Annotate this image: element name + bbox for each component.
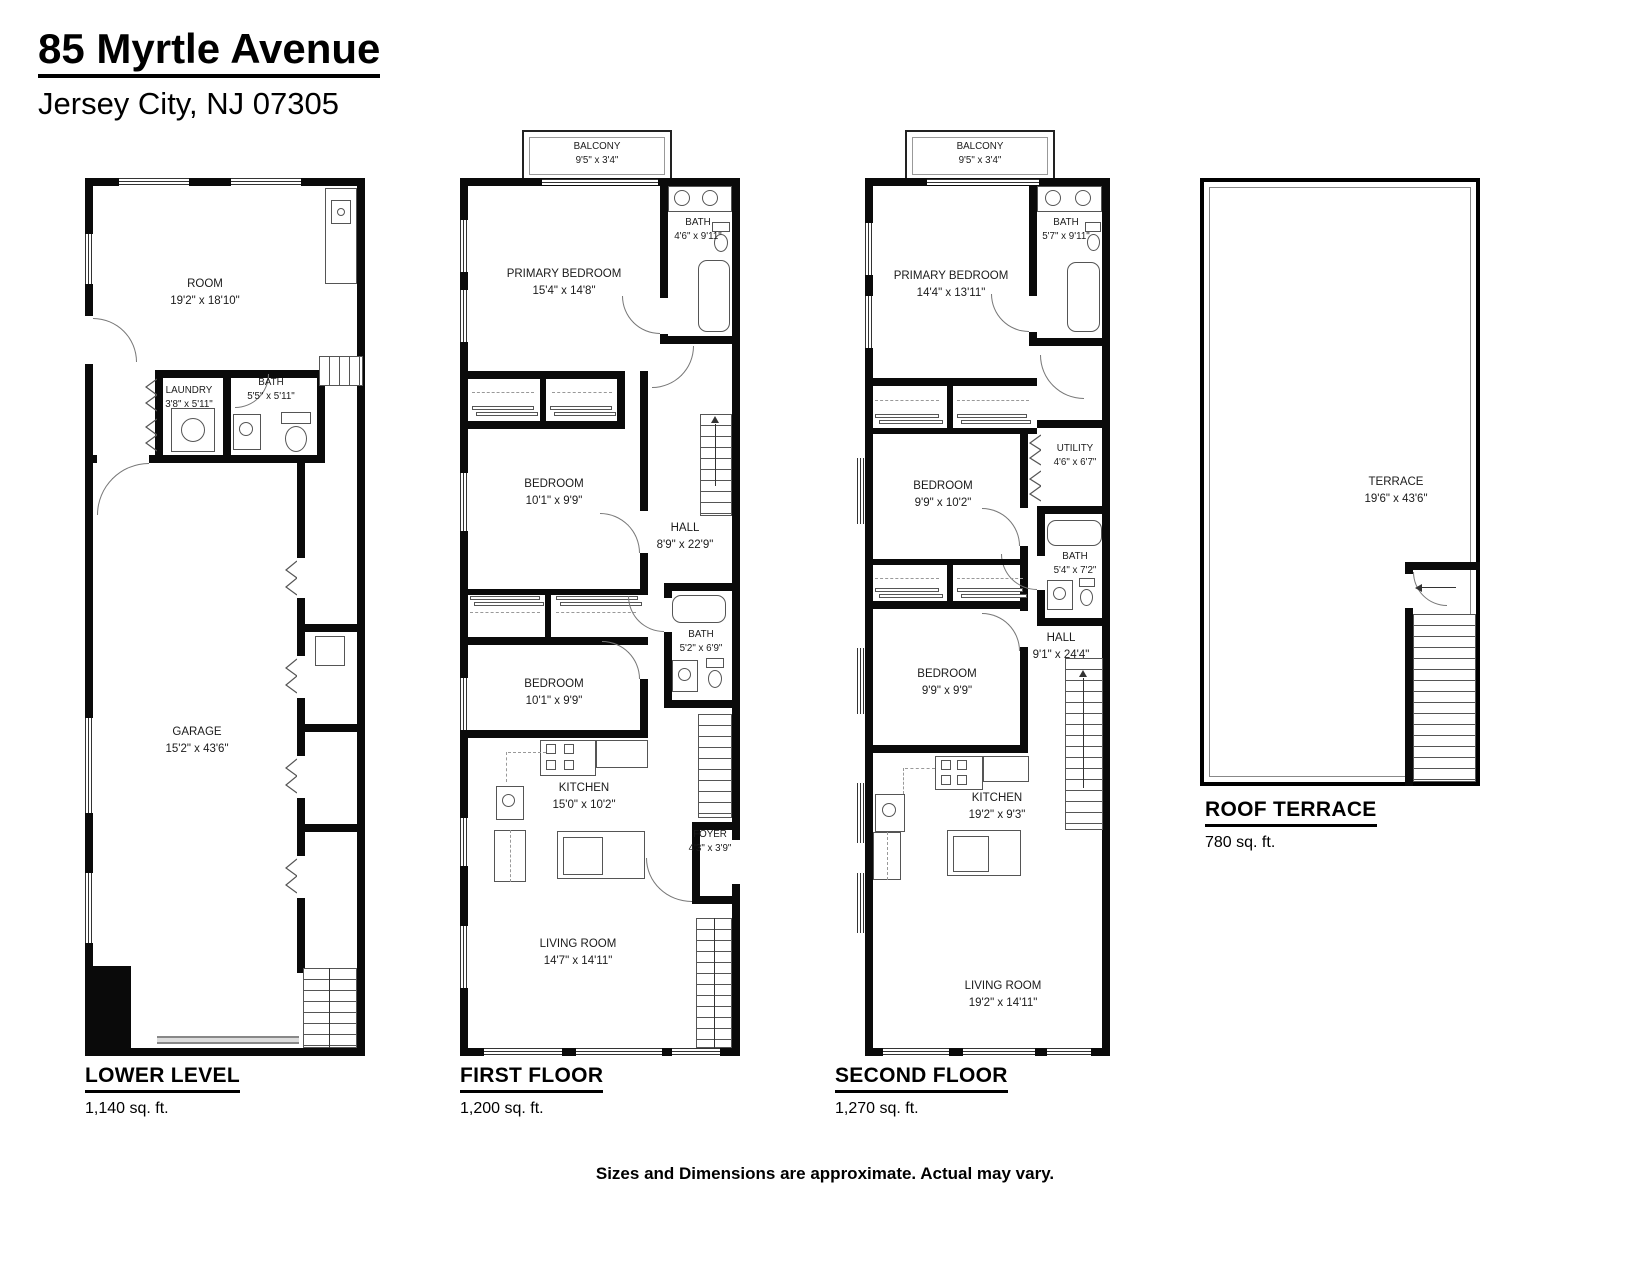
room-dims: 10'1" x 9'9" — [524, 493, 583, 510]
wall — [640, 371, 648, 511]
wall — [297, 598, 305, 656]
room-name: KITCHEN — [552, 780, 615, 797]
caption-lower-level: LOWER LEVEL 1,140 sq. ft. — [85, 1064, 240, 1118]
door-opening — [660, 298, 668, 334]
sink — [1045, 190, 1061, 206]
stairs-direction-arrow — [1422, 587, 1456, 588]
sliding-door — [472, 406, 534, 410]
room-dims: 15'4" x 14'8" — [507, 283, 622, 300]
counter-dashed-line — [506, 752, 507, 782]
sliding-door — [470, 596, 540, 600]
wall — [640, 553, 648, 589]
room-name: BEDROOM — [917, 666, 976, 683]
wall — [1405, 562, 1480, 570]
room-dims: 5'5" x 5'11" — [247, 390, 295, 404]
room-label-bath: BATH4'6" x 9'11" — [674, 216, 722, 243]
door-arc — [602, 641, 640, 679]
caption-roof-terrace: ROOF TERRACE 780 sq. ft. — [1205, 798, 1377, 852]
plan-area: 1,200 sq. ft. — [460, 1100, 603, 1118]
room-name: GARAGE — [165, 724, 228, 741]
closet-rail — [957, 400, 1029, 401]
door-arc — [622, 296, 660, 334]
window — [857, 648, 865, 714]
stairs — [1065, 658, 1103, 830]
room-label-bedroom: BEDROOM9'9" x 10'2" — [913, 478, 972, 511]
sliding-door — [556, 596, 638, 600]
room-name: HALL — [1033, 630, 1090, 647]
room-name: HALL — [657, 520, 714, 537]
toilet-tank — [281, 412, 311, 424]
bifold-door-icon — [285, 658, 297, 694]
sink — [702, 190, 718, 206]
plan-name: LOWER LEVEL — [85, 1064, 240, 1093]
kitchen-island-sink — [563, 837, 603, 875]
stove-burner-icon — [957, 775, 967, 785]
sliding-door — [961, 594, 1027, 598]
room-dims: 5'2" x 6'9" — [680, 642, 723, 656]
stairs — [303, 968, 357, 1048]
sink-drain-icon — [502, 794, 515, 807]
room-dims: 5'7" x 9'11" — [1042, 230, 1090, 244]
room-name: BALCONY — [574, 140, 621, 154]
sink-drain-icon — [337, 208, 345, 216]
bifold-door-icon — [285, 858, 297, 894]
wall — [865, 428, 1037, 434]
wall — [297, 698, 305, 756]
window — [85, 718, 93, 813]
wall — [660, 336, 740, 344]
room-dims: 4'6" x 6'7" — [1054, 456, 1097, 470]
plan-name: SECOND FLOOR — [835, 1064, 1008, 1093]
room-dims: 9'9" x 9'9" — [917, 683, 976, 700]
window — [576, 1048, 662, 1056]
wall-mass — [93, 966, 131, 1048]
room-name: BATH — [674, 216, 722, 230]
wall — [664, 583, 732, 591]
wall — [1037, 506, 1110, 514]
caption-first-floor: FIRST FLOOR 1,200 sq. ft. — [460, 1064, 603, 1118]
plan-lower-level: ROOM19'2" x 18'10" LAUNDRY3'8" x 5'11" B… — [85, 178, 365, 1056]
room-name: KITCHEN — [969, 790, 1026, 807]
sliding-door — [542, 179, 658, 185]
room-dims: 9'5" x 3'4" — [574, 154, 621, 168]
window — [672, 1048, 720, 1056]
counter-dashed-line — [905, 768, 935, 769]
window — [883, 1048, 949, 1056]
wall — [460, 589, 648, 595]
stairs-direction-arrow — [1415, 584, 1422, 592]
room-name: BALCONY — [957, 140, 1004, 154]
closet-rail — [552, 392, 612, 393]
room-name: BATH — [247, 376, 295, 390]
room-name: BEDROOM — [524, 676, 583, 693]
bifold-door-icon — [1029, 434, 1041, 466]
stairs — [698, 714, 732, 818]
door-arc — [97, 463, 149, 515]
door-arc — [1040, 355, 1084, 399]
room-dims: 9'1" x 24'4" — [1033, 647, 1090, 664]
bifold-door-icon — [285, 560, 297, 596]
sink-drain-icon — [239, 422, 253, 436]
room-name: LIVING ROOM — [540, 936, 617, 953]
closet-rail — [875, 578, 939, 579]
wall — [692, 896, 732, 904]
wall — [460, 637, 648, 645]
plan-area: 780 sq. ft. — [1205, 834, 1377, 852]
wall — [1020, 601, 1028, 611]
plan-area: 1,140 sq. ft. — [85, 1100, 240, 1118]
toilet-tank — [1079, 578, 1095, 587]
washer-door-icon — [181, 418, 205, 442]
stove-burner-icon — [941, 775, 951, 785]
sliding-door — [879, 594, 943, 598]
window — [1047, 1048, 1091, 1056]
plan-second-floor: BALCONY9'5" x 3'4" PRIMARY BEDROOM14'4" … — [835, 128, 1115, 1056]
room-dims: 5'4" x 7'2" — [1054, 564, 1097, 578]
toilet-tank — [706, 658, 724, 668]
wall — [297, 463, 305, 558]
wall — [305, 624, 357, 632]
plan-area: 1,270 sq. ft. — [835, 1100, 1008, 1118]
door-arc — [93, 318, 137, 362]
room-name: PRIMARY BEDROOM — [894, 268, 1009, 285]
room-dims: 9'5" x 3'4" — [957, 154, 1004, 168]
room-dims: 15'0" x 10'2" — [552, 797, 615, 814]
room-name: BEDROOM — [524, 476, 583, 493]
plan-name: ROOF TERRACE — [1205, 798, 1377, 827]
door-arc — [982, 613, 1020, 651]
room-label-laundry: LAUNDRY3'8" x 5'11" — [165, 384, 213, 411]
wall — [865, 601, 1028, 609]
room-label-bedroom: BEDROOM10'1" x 9'9" — [524, 476, 583, 509]
door-arc — [646, 858, 692, 902]
sliding-door — [879, 420, 943, 424]
door-arc — [982, 508, 1020, 546]
sliding-door — [961, 420, 1031, 424]
door-opening — [97, 455, 149, 463]
room-label-primary-bedroom: PRIMARY BEDROOM14'4" x 13'11" — [894, 268, 1009, 301]
counter-dashed-line — [887, 832, 888, 880]
sliding-door — [957, 414, 1027, 418]
sink-drain-icon — [1053, 587, 1066, 600]
stairs-direction-arrow — [715, 424, 716, 486]
closet-rail — [472, 392, 534, 393]
stairs — [700, 414, 732, 516]
window — [857, 873, 865, 933]
wall — [357, 178, 365, 1056]
closet-rail — [470, 612, 540, 613]
stove-burner-icon — [941, 760, 951, 770]
window — [963, 1048, 1035, 1056]
stairs-direction-arrow — [1083, 678, 1084, 788]
wall — [305, 724, 357, 732]
room-label-balcony: BALCONY9'5" x 3'4" — [574, 140, 621, 167]
stairs-direction-arrow — [1079, 670, 1087, 677]
window — [85, 873, 93, 943]
room-name: PRIMARY BEDROOM — [507, 266, 622, 283]
sliding-door — [875, 414, 939, 418]
room-dims: 3'8" x 5'11" — [165, 398, 213, 412]
wall — [640, 679, 648, 732]
counter-dashed-line — [903, 768, 904, 794]
window — [865, 223, 873, 275]
stairs-rail — [714, 918, 715, 1048]
wall — [223, 370, 231, 463]
counter-dashed-line — [508, 752, 546, 753]
room-label-living-room: LIVING ROOM19'2" x 14'11" — [965, 978, 1042, 1011]
room-label-room: ROOM19'2" x 18'10" — [170, 276, 239, 309]
room-label-hall: HALL8'9" x 22'9" — [657, 520, 714, 553]
room-dims: 8'9" x 22'9" — [657, 537, 714, 554]
room-label-foyer: FOYER4'3" x 3'9" — [689, 828, 732, 855]
wall — [297, 798, 305, 856]
sliding-door — [554, 412, 616, 416]
sliding-door — [957, 588, 1023, 592]
wall — [947, 559, 953, 607]
room-label-utility: UTILITY4'6" x 6'7" — [1054, 442, 1097, 469]
wall — [1102, 178, 1110, 1056]
sliding-door — [875, 588, 939, 592]
room-label-primary-bedroom: PRIMARY BEDROOM15'4" x 14'8" — [507, 266, 622, 299]
room-label-balcony: BALCONY9'5" x 3'4" — [957, 140, 1004, 167]
plan-name: FIRST FLOOR — [460, 1064, 603, 1093]
door-opening — [85, 316, 93, 364]
door-arc — [600, 513, 640, 553]
room-label-bedroom: BEDROOM10'1" x 9'9" — [524, 676, 583, 709]
wall — [305, 824, 357, 832]
window — [857, 458, 865, 524]
wall — [545, 589, 551, 637]
wall — [664, 700, 732, 708]
room-label-bath: BATH5'4" x 7'2" — [1054, 550, 1097, 577]
room-name: UTILITY — [1054, 442, 1097, 456]
toilet-bowl — [708, 670, 722, 688]
window — [857, 783, 865, 843]
wall — [460, 421, 625, 429]
door-opening — [732, 840, 740, 884]
room-name: LAUNDRY — [165, 384, 213, 398]
page-subtitle: Jersey City, NJ 07305 — [38, 86, 380, 122]
window — [460, 926, 468, 988]
sink — [1075, 190, 1091, 206]
window — [460, 290, 468, 342]
window — [119, 178, 189, 186]
room-dims: 9'9" x 10'2" — [913, 495, 972, 512]
wall — [1029, 338, 1110, 346]
room-name: BATH — [1042, 216, 1090, 230]
room-dims: 14'4" x 13'11" — [894, 285, 1009, 302]
stove-burner-icon — [564, 760, 574, 770]
room-label-terrace: TERRACE19'6" x 43'6" — [1364, 474, 1427, 507]
stove-burner-icon — [546, 760, 556, 770]
stove-burner-icon — [546, 744, 556, 754]
window — [85, 234, 93, 284]
room-dims: 15'2" x 43'6" — [165, 741, 228, 758]
kitchen-island-sink — [953, 836, 989, 872]
window — [460, 473, 468, 531]
sliding-door — [476, 412, 538, 416]
room-label-kitchen: KITCHEN19'2" x 9'3" — [969, 790, 1026, 823]
room-name: BEDROOM — [913, 478, 972, 495]
room-name: ROOM — [170, 276, 239, 293]
wall — [460, 730, 648, 738]
closet-rail — [875, 400, 939, 401]
room-label-bath: BATH5'2" x 6'9" — [680, 628, 723, 655]
room-name: TERRACE — [1364, 474, 1427, 491]
closet-rail — [957, 578, 1023, 579]
wall — [865, 745, 1028, 753]
floorplan-page: 85 Myrtle Avenue Jersey City, NJ 07305 — [0, 0, 1650, 1275]
wall — [732, 178, 740, 1056]
window — [484, 1048, 562, 1056]
window — [460, 678, 468, 736]
room-dims: 19'6" x 43'6" — [1364, 491, 1427, 508]
page-title: 85 Myrtle Avenue — [38, 26, 380, 78]
bifold-door-icon — [1029, 470, 1041, 502]
room-dims: 19'2" x 18'10" — [170, 293, 239, 310]
room-dims: 14'7" x 14'11" — [540, 953, 617, 970]
utility-box — [315, 636, 345, 666]
door-opening — [1405, 574, 1413, 608]
wall — [85, 1048, 365, 1056]
caption-second-floor: SECOND FLOOR 1,270 sq. ft. — [835, 1064, 1008, 1118]
room-label-hall: HALL9'1" x 24'4" — [1033, 630, 1090, 663]
wall — [1020, 428, 1028, 508]
stairs — [1413, 614, 1476, 782]
wall — [640, 637, 648, 645]
disclaimer-text: Sizes and Dimensions are approximate. Ac… — [0, 1164, 1650, 1184]
room-name: BATH — [1054, 550, 1097, 564]
counter — [596, 740, 648, 768]
room-label-bedroom: BEDROOM9'9" x 9'9" — [917, 666, 976, 699]
bifold-door-icon — [145, 418, 157, 452]
sink-drain-icon — [678, 668, 691, 681]
wall — [1037, 618, 1110, 626]
plan-roof-terrace: TERRACE19'6" x 43'6" — [1200, 178, 1480, 838]
room-dims: 4'3" x 3'9" — [689, 842, 732, 856]
room-name: FOYER — [689, 828, 732, 842]
plan-first-floor: BALCONY9'5" x 3'4" PRIMARY BEDROOM15'4" … — [460, 128, 740, 1056]
room-label-living-room: LIVING ROOM14'7" x 14'11" — [540, 936, 617, 969]
sliding-door — [927, 179, 1039, 185]
sink-drain-icon — [882, 803, 896, 817]
room-label-kitchen: KITCHEN15'0" x 10'2" — [552, 780, 615, 813]
room-dims: 19'2" x 9'3" — [969, 807, 1026, 824]
room-dims: 19'2" x 14'11" — [965, 995, 1042, 1012]
door-arc — [652, 346, 694, 388]
wall — [1037, 420, 1110, 428]
window — [865, 296, 873, 348]
bifold-door-icon — [285, 758, 297, 794]
room-name: LIVING ROOM — [965, 978, 1042, 995]
bathtub — [672, 595, 726, 623]
room-dims: 4'6" x 9'11" — [674, 230, 722, 244]
toilet-bowl — [1080, 589, 1093, 606]
bathtub — [1067, 262, 1100, 332]
stairs-rail — [329, 968, 330, 1048]
room-label-garage: GARAGE15'2" x 43'6" — [165, 724, 228, 757]
sink — [674, 190, 690, 206]
sliding-door — [474, 602, 544, 606]
wall — [297, 898, 305, 973]
closet-rail — [556, 612, 636, 613]
counter — [983, 756, 1029, 782]
address-header: 85 Myrtle Avenue Jersey City, NJ 07305 — [38, 26, 380, 122]
room-name: BATH — [680, 628, 723, 642]
stairs-direction-arrow — [711, 416, 719, 423]
window — [460, 220, 468, 272]
door-opening — [1029, 296, 1037, 332]
window — [460, 818, 468, 866]
wall — [947, 378, 953, 434]
entry-steps — [319, 356, 363, 386]
door-arc — [628, 596, 664, 632]
wall — [1020, 647, 1028, 753]
toilet-bowl — [285, 426, 307, 452]
bifold-door-icon — [145, 378, 157, 412]
stove-burner-icon — [564, 744, 574, 754]
door-opening — [664, 598, 672, 632]
stove-burner-icon — [957, 760, 967, 770]
bathtub — [1047, 520, 1102, 546]
garage-door — [157, 1036, 299, 1044]
room-label-bath: BATH5'7" x 9'11" — [1042, 216, 1090, 243]
room-dims: 10'1" x 9'9" — [524, 693, 583, 710]
door-opening — [1037, 556, 1045, 590]
bathtub — [698, 260, 730, 332]
room-label-bath: BATH5'5" x 5'11" — [247, 376, 295, 403]
counter-dashed-line — [510, 830, 511, 882]
sliding-door — [550, 406, 612, 410]
window — [231, 178, 301, 186]
